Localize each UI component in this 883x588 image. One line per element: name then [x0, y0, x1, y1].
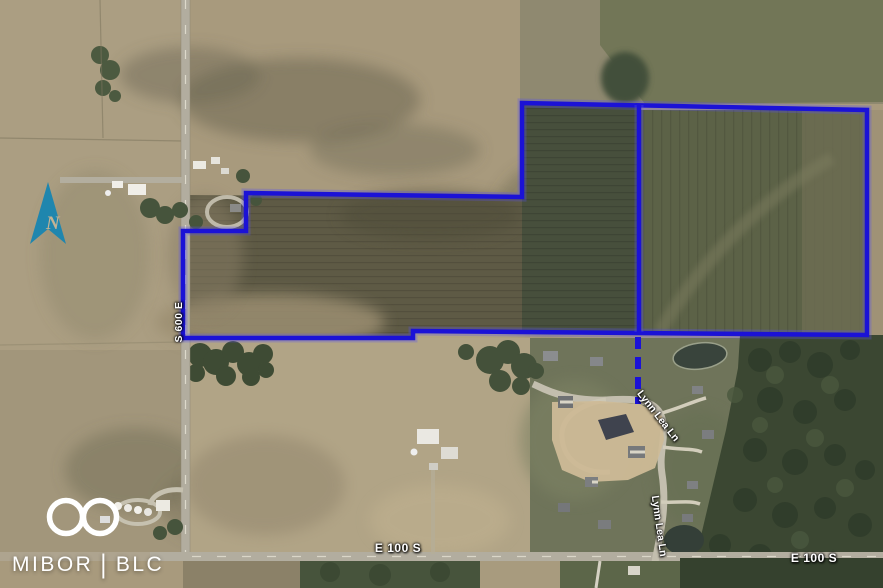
north-arrow-icon: N: [24, 180, 74, 250]
road-label-e100s-west: E 100 S: [375, 541, 421, 555]
brand-watermark: MIBOR | BLC: [8, 490, 178, 578]
infinity-icon: [8, 490, 158, 544]
road-label-e100s-east: E 100 S: [791, 551, 837, 565]
brand-right: BLC: [116, 553, 164, 577]
pond-south: [664, 525, 704, 555]
road-label-s600e: S 600 E: [173, 302, 185, 343]
brand-left: MIBOR: [12, 553, 93, 577]
brand-divider: |: [100, 549, 108, 580]
brand-text: MIBOR | BLC: [8, 551, 178, 578]
north-arrow-label: N: [45, 213, 61, 234]
aerial-map: N S 600 E E 100 S E 100 S Lynn Lea Ln Ly…: [0, 0, 883, 588]
road-s600e: [181, 0, 190, 559]
